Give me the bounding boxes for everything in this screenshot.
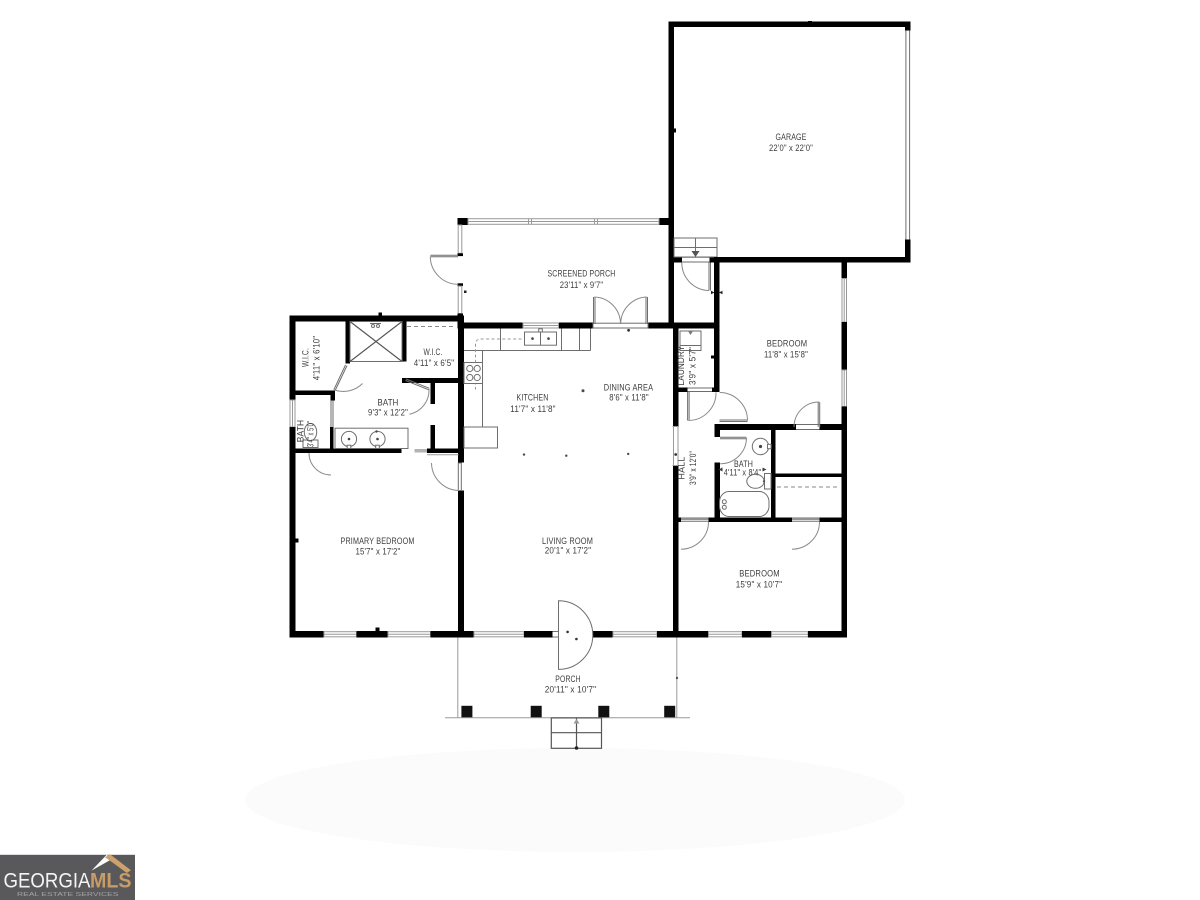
svg-text:4'11" x 8'4": 4'11" x 8'4" (724, 468, 762, 478)
svg-text:3'4" x 5'0": 3'4" x 5'0" (306, 421, 316, 447)
svg-text:BEDROOM: BEDROOM (739, 569, 780, 579)
svg-text:DINING AREA: DINING AREA (604, 383, 654, 393)
svg-text:MLS: MLS (90, 869, 132, 893)
svg-text:PRIMARY BEDROOM: PRIMARY BEDROOM (341, 536, 415, 546)
svg-text:PORCH: PORCH (555, 674, 581, 684)
svg-text:15'9" x 10'7": 15'9" x 10'7" (736, 580, 783, 590)
svg-text:8'6" x 11'8": 8'6" x 11'8" (609, 393, 649, 403)
svg-text:11'8" x 15'8": 11'8" x 15'8" (764, 350, 808, 360)
svg-text:4'11" x 6'5": 4'11" x 6'5" (414, 358, 455, 368)
svg-text:11'7" x 11'8": 11'7" x 11'8" (510, 404, 556, 414)
svg-text:LIVING ROOM: LIVING ROOM (542, 536, 593, 546)
svg-text:20'1" x 17'2": 20'1" x 17'2" (545, 546, 592, 556)
svg-text:W.I.C.: W.I.C. (424, 347, 443, 357)
svg-text:BATH: BATH (378, 398, 399, 408)
svg-text:15'7" x 17'2": 15'7" x 17'2" (356, 547, 401, 557)
svg-text:9'3" x 12'2": 9'3" x 12'2" (368, 408, 408, 418)
svg-text:BATH: BATH (296, 420, 306, 443)
svg-text:HALL: HALL (677, 457, 687, 480)
svg-text:BEDROOM: BEDROOM (767, 339, 808, 349)
svg-text:3'9" x 5'7": 3'9" x 5'7" (688, 347, 698, 385)
svg-text:23'11" x 9'7": 23'11" x 9'7" (560, 280, 604, 290)
svg-text:22'0" x 22'0": 22'0" x 22'0" (769, 143, 813, 153)
svg-text:3'9" x 12'0": 3'9" x 12'0" (688, 451, 698, 485)
svg-text:LAUNDRY: LAUNDRY (676, 346, 686, 386)
svg-text:KITCHEN: KITCHEN (517, 392, 549, 402)
svg-text:REAL ESTATE SERVICES: REAL ESTATE SERVICES (17, 892, 119, 898)
svg-text:20'11" x 10'7": 20'11" x 10'7" (545, 685, 597, 695)
svg-text:GEORGIA: GEORGIA (4, 869, 92, 893)
svg-text:GARAGE: GARAGE (776, 132, 807, 142)
svg-text:4'11" x 6'10": 4'11" x 6'10" (312, 336, 322, 381)
svg-text:SCREENED PORCH: SCREENED PORCH (548, 269, 616, 279)
svg-text:W.I.C.: W.I.C. (301, 348, 311, 367)
